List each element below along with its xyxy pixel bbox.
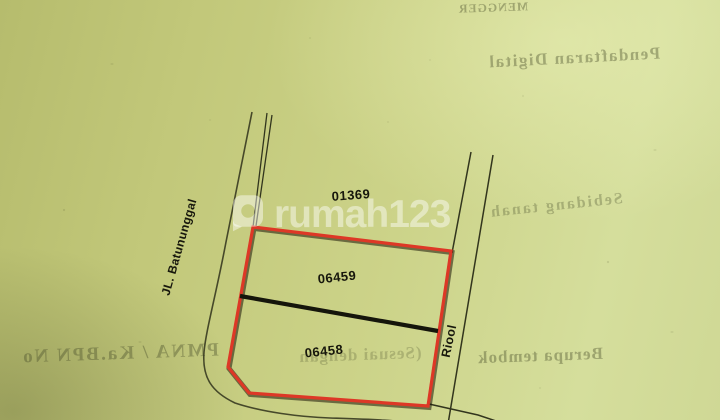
parcel-label-01369: 01369	[331, 186, 371, 204]
parcel-boundary-shadow	[229, 229, 452, 408]
scanned-cadastral-map: MENGGER Pendaftaran Digital Sebidang tan…	[0, 0, 720, 420]
riool-left-edge-line	[452, 152, 471, 253]
riool-right-edge-line	[448, 155, 493, 420]
parcel-divider-line	[240, 296, 438, 331]
boundary-below-line	[429, 404, 505, 420]
parcel-linework	[0, 0, 720, 420]
boundary-extension-line-a	[253, 113, 267, 227]
boundary-extension-line-b	[256, 115, 272, 226]
road-edge-line	[204, 112, 432, 420]
parcel-boundary-red	[228, 227, 451, 406]
